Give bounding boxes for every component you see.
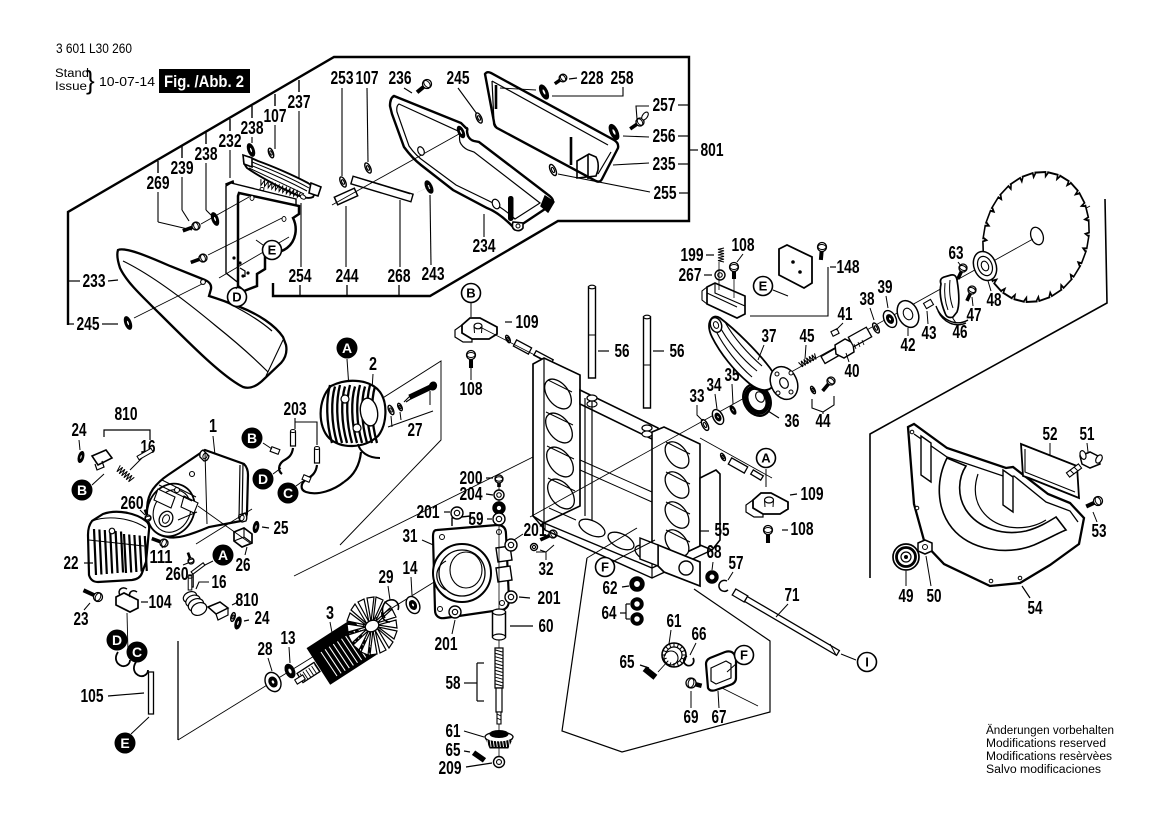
svg-text:234: 234 <box>473 236 496 256</box>
svg-text:238: 238 <box>241 118 264 138</box>
svg-text:36: 36 <box>785 411 800 431</box>
svg-text:3: 3 <box>326 603 334 623</box>
svg-text:E: E <box>759 279 768 294</box>
svg-text:62: 62 <box>603 578 618 598</box>
svg-text:236: 236 <box>389 68 412 88</box>
svg-text:59: 59 <box>469 509 484 529</box>
svg-text:243: 243 <box>422 264 445 284</box>
svg-text:54: 54 <box>1028 598 1043 618</box>
svg-text:40: 40 <box>845 361 860 381</box>
svg-text:810: 810 <box>115 404 138 424</box>
svg-text:37: 37 <box>762 326 777 346</box>
svg-text:26: 26 <box>236 555 251 575</box>
svg-text:810: 810 <box>236 590 259 610</box>
svg-text:257: 257 <box>653 95 676 115</box>
svg-text:B: B <box>77 482 87 498</box>
svg-text:47: 47 <box>967 305 982 325</box>
svg-text:64: 64 <box>602 603 617 623</box>
svg-text:232: 232 <box>219 131 242 151</box>
svg-text:254: 254 <box>289 266 312 286</box>
svg-text:Änderungen vorbehalten: Änderungen vorbehalten <box>986 725 1114 737</box>
svg-text:51: 51 <box>1080 424 1095 444</box>
svg-text:Salvo modificaciones: Salvo modificaciones <box>986 764 1101 776</box>
svg-text:41: 41 <box>838 304 853 324</box>
svg-text:28: 28 <box>258 639 273 659</box>
svg-text:D: D <box>232 290 241 305</box>
svg-text:238: 238 <box>195 144 218 164</box>
svg-text:Fig. /Abb. 2: Fig. /Abb. 2 <box>164 73 244 91</box>
svg-text:25: 25 <box>274 518 289 538</box>
svg-text:109: 109 <box>516 312 539 332</box>
svg-text:39: 39 <box>878 277 893 297</box>
svg-text:32: 32 <box>539 559 554 579</box>
svg-text:108: 108 <box>460 379 483 399</box>
svg-text:23: 23 <box>74 609 89 629</box>
svg-text:148: 148 <box>837 257 860 277</box>
svg-text:258: 258 <box>611 68 634 88</box>
svg-text:38: 38 <box>860 289 875 309</box>
svg-text:52: 52 <box>1043 424 1058 444</box>
svg-text:56: 56 <box>670 341 685 361</box>
svg-text:109: 109 <box>801 484 824 504</box>
svg-text:3 601 L30 260: 3 601 L30 260 <box>56 41 132 56</box>
svg-text:42: 42 <box>901 335 916 355</box>
svg-text:65: 65 <box>620 652 635 672</box>
svg-text:53: 53 <box>1092 521 1107 541</box>
svg-text:A: A <box>761 451 771 466</box>
svg-text:267: 267 <box>679 265 702 285</box>
svg-text:66: 66 <box>692 624 707 644</box>
svg-text:63: 63 <box>949 243 964 263</box>
svg-text:1: 1 <box>209 416 217 436</box>
svg-text:B: B <box>466 286 475 301</box>
svg-text:57: 57 <box>729 553 744 573</box>
svg-text:56: 56 <box>615 341 630 361</box>
svg-text:24: 24 <box>72 420 87 440</box>
svg-text:61: 61 <box>446 721 461 741</box>
svg-text:108: 108 <box>791 519 814 539</box>
svg-text:71: 71 <box>785 585 800 605</box>
svg-text:D: D <box>258 471 268 487</box>
svg-text:10-07-14: 10-07-14 <box>99 74 155 89</box>
svg-text:55: 55 <box>715 520 730 540</box>
svg-text:69: 69 <box>684 707 699 727</box>
svg-text:46: 46 <box>953 322 968 342</box>
svg-text:104: 104 <box>149 592 172 612</box>
svg-text:260: 260 <box>166 564 189 584</box>
svg-text:43: 43 <box>922 323 937 343</box>
svg-text:245: 245 <box>447 68 470 88</box>
svg-text:50: 50 <box>927 586 942 606</box>
svg-text:48: 48 <box>987 290 1002 310</box>
svg-text:65: 65 <box>446 740 461 760</box>
svg-text:67: 67 <box>712 707 727 727</box>
svg-text:61: 61 <box>667 611 682 631</box>
svg-text:233: 233 <box>83 271 106 291</box>
svg-text:45: 45 <box>800 326 815 346</box>
svg-text:801: 801 <box>701 140 724 160</box>
svg-text:239: 239 <box>171 158 194 178</box>
svg-text:204: 204 <box>460 484 483 504</box>
svg-text:256: 256 <box>653 126 676 146</box>
svg-text:16: 16 <box>212 572 227 592</box>
svg-text:209: 209 <box>439 758 462 778</box>
svg-text:13: 13 <box>281 628 296 648</box>
svg-text:269: 269 <box>147 173 170 193</box>
svg-text:203: 203 <box>284 399 307 419</box>
svg-text:24: 24 <box>255 608 270 628</box>
svg-text:C: C <box>132 644 142 660</box>
svg-text:31: 31 <box>403 526 418 546</box>
svg-text:108: 108 <box>732 235 755 255</box>
svg-text:E: E <box>120 735 129 751</box>
svg-text:F: F <box>740 648 748 663</box>
svg-text:49: 49 <box>899 586 914 606</box>
svg-text:27: 27 <box>408 420 423 440</box>
svg-text:B: B <box>247 430 257 446</box>
svg-text:Modifications reserved: Modifications reserved <box>986 738 1106 750</box>
svg-text:D: D <box>112 632 122 648</box>
svg-text:268: 268 <box>388 266 411 286</box>
svg-text:22: 22 <box>64 553 79 573</box>
svg-text:228: 228 <box>581 68 604 88</box>
svg-text:235: 235 <box>653 154 676 174</box>
svg-text:199: 199 <box>681 245 704 265</box>
svg-text:A: A <box>218 547 228 563</box>
svg-text:60: 60 <box>539 616 554 636</box>
svg-text:34: 34 <box>707 375 722 395</box>
svg-text:}: } <box>86 65 95 95</box>
svg-text:E: E <box>268 243 277 258</box>
svg-text:29: 29 <box>379 567 394 587</box>
svg-text:105: 105 <box>81 686 104 706</box>
svg-text:14: 14 <box>403 558 418 578</box>
svg-text:F: F <box>601 560 609 575</box>
svg-text:Stand: Stand <box>55 68 89 80</box>
svg-text:A: A <box>342 340 352 356</box>
svg-text:68: 68 <box>707 542 722 562</box>
svg-text:244: 244 <box>336 266 359 286</box>
svg-text:Issue: Issue <box>55 81 87 93</box>
svg-text:201: 201 <box>435 634 458 654</box>
svg-text:2: 2 <box>369 354 377 374</box>
svg-text:255: 255 <box>654 183 677 203</box>
svg-text:253: 253 <box>331 68 354 88</box>
svg-text:237: 237 <box>288 92 311 112</box>
svg-text:107: 107 <box>264 106 287 126</box>
svg-text:201: 201 <box>538 588 561 608</box>
svg-text:107: 107 <box>356 68 379 88</box>
svg-text:I: I <box>865 655 869 670</box>
svg-text:58: 58 <box>446 673 461 693</box>
svg-text:Modifications resèrvèes: Modifications resèrvèes <box>986 751 1112 763</box>
svg-text:245: 245 <box>77 314 100 334</box>
svg-text:C: C <box>283 485 293 501</box>
svg-text:33: 33 <box>690 386 705 406</box>
